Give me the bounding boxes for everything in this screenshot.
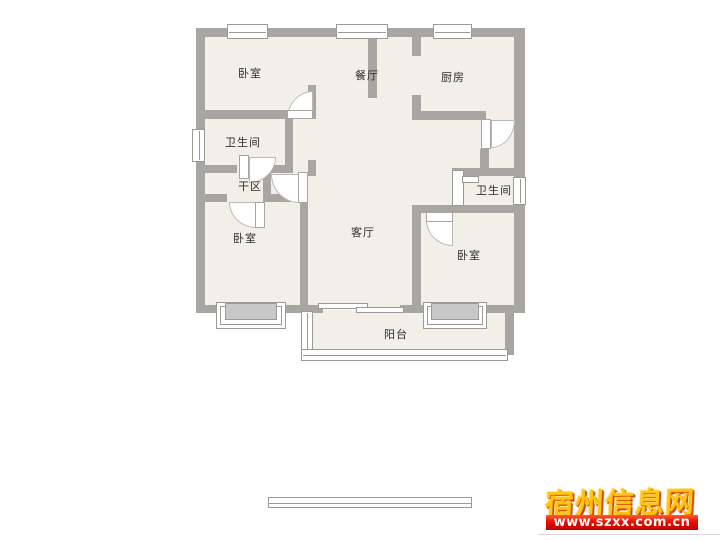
wall-kitchen-bottom: [412, 111, 486, 120]
bay-window-icon-bedroom3-fill: [431, 303, 479, 320]
wall-hall-stub-lower: [308, 160, 316, 176]
window-icon-balcony-left: [301, 311, 313, 352]
room-label-balcony: 阳台: [384, 326, 408, 342]
window-icon-bath1-left: [192, 129, 205, 162]
wall-bedroom2-right: [300, 194, 308, 313]
floorplan-image: 卧室 餐厅 厨房 卫生间 干区 卧室 客厅 卫生间 卧室 阳台 宿州信息网 ww…: [0, 0, 720, 540]
door-leaf-bedroom2: [255, 202, 265, 228]
wall-entry-stub: [480, 149, 489, 170]
door-leaf-bedroom3: [426, 212, 453, 222]
room-label-dry-area: 干区: [238, 178, 262, 194]
room-label-bathroom-left: 卫生间: [225, 134, 261, 150]
wall-exterior-left: [196, 28, 205, 313]
room-label-bedroom-left: 卧室: [233, 230, 257, 246]
bay-window-icon-bedroom2-fill: [225, 303, 277, 320]
wall-bedroom3-left: [412, 205, 421, 313]
bottom-divider-line: [538, 534, 720, 535]
window-icon-balcony-bottom: [301, 349, 508, 361]
door-leaf-bath1: [239, 155, 249, 179]
watermark-url: www.szxx.com.cn: [554, 515, 691, 530]
wall-bedroom1-bottom: [196, 110, 288, 119]
door-leaf-bedroom1: [287, 110, 313, 119]
scale-bar: [268, 497, 472, 508]
wall-kitchen-left-stub: [412, 37, 421, 56]
window-icon-bath2-right: [513, 177, 526, 205]
door-leaf-hallway: [298, 172, 308, 203]
room-label-dining: 餐厅: [355, 67, 379, 83]
room-label-bedroom-top-left: 卧室: [238, 65, 262, 81]
room-label-living: 客厅: [351, 224, 375, 240]
sliding-door-icon-balcony-panel2: [356, 307, 404, 313]
window-icon-dining-top: [336, 24, 388, 39]
wall-bath1-bottom-left: [205, 165, 237, 173]
watermark-url-banner: www.szxx.com.cn: [546, 515, 698, 530]
room-label-kitchen: 厨房: [441, 69, 465, 85]
room-label-bedroom-right: 卧室: [457, 247, 481, 263]
door-leaf-entry: [481, 119, 491, 149]
wall-dryarea-bottom-left: [196, 194, 227, 202]
window-icon-kitchen-top: [433, 24, 472, 39]
window-icon-bedroom1-top: [227, 24, 268, 39]
room-label-bathroom-right: 卫生间: [476, 182, 512, 198]
